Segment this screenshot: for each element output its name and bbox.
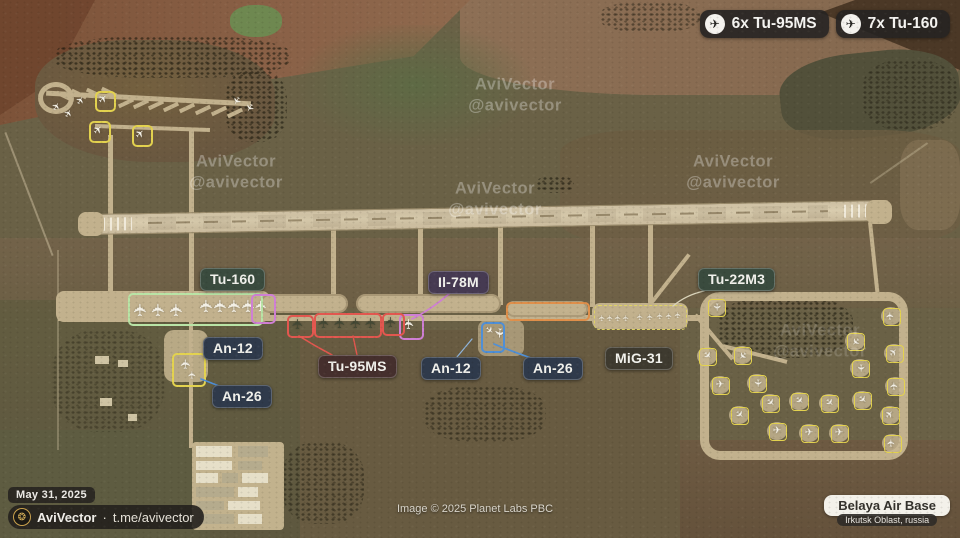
annotation-label-il78m: Il-78M bbox=[428, 271, 489, 294]
revetment-pad bbox=[852, 391, 872, 409]
footer-left: May 31, 2025 ❂ AviVector · t.me/avivecto… bbox=[8, 487, 204, 529]
watermark-line2: @avivector bbox=[151, 172, 321, 193]
revetment-pad bbox=[850, 359, 870, 377]
annotation-label-an12-left: An-12 bbox=[203, 337, 263, 360]
revetment-pad bbox=[706, 298, 726, 316]
apron-strip bbox=[356, 294, 501, 313]
building bbox=[196, 446, 232, 457]
avivector-logo-icon: ❂ bbox=[13, 508, 31, 526]
revetment-pad bbox=[884, 344, 904, 362]
runway-turnaround bbox=[78, 212, 104, 236]
revetment-pad bbox=[882, 434, 902, 452]
author-credit: ❂ AviVector · t.me/avivector bbox=[8, 505, 204, 529]
center-pad bbox=[478, 320, 524, 356]
building bbox=[196, 461, 232, 470]
perimeter-road bbox=[57, 250, 59, 450]
revetment-pad bbox=[710, 376, 730, 394]
annotation-label-mig31: MiG-31 bbox=[605, 347, 673, 370]
annotation-label-tu95ms: Tu-95MS bbox=[318, 355, 397, 378]
base-name-block: Belaya Air Base Irkutsk Oblast, russia bbox=[824, 495, 950, 526]
annotation-label-an12-center: An-12 bbox=[421, 357, 481, 380]
building bbox=[238, 514, 262, 524]
base-name: Belaya Air Base bbox=[824, 495, 950, 516]
annotation-label-tu22m3: Tu-22M3 bbox=[698, 268, 775, 291]
revetment-pad bbox=[732, 346, 752, 364]
badge-label: 7x Tu-160 bbox=[868, 15, 938, 33]
building bbox=[196, 473, 218, 483]
taxiway-connector bbox=[590, 223, 595, 307]
credit-separator: · bbox=[103, 510, 107, 525]
watermark-line1: AviVector bbox=[410, 178, 580, 199]
annotation-label-an26-center: An-26 bbox=[523, 357, 583, 380]
revetment-pad bbox=[729, 406, 749, 424]
taxiway-connector bbox=[498, 225, 503, 305]
building bbox=[238, 487, 258, 497]
plane-icon: ✈ bbox=[705, 14, 725, 34]
badge-tu95ms-count: ✈ 6x Tu-95MS bbox=[700, 10, 829, 38]
building bbox=[128, 414, 137, 421]
revetment-pad bbox=[799, 424, 819, 442]
annotation-label-an26-left: An-26 bbox=[212, 385, 272, 408]
revetment-pad bbox=[881, 307, 901, 325]
revetment-pad bbox=[697, 347, 717, 365]
plane-icon: ✈ bbox=[841, 14, 861, 34]
revetment-pad bbox=[747, 374, 767, 392]
revetment-pad bbox=[829, 424, 849, 442]
revetment-pad bbox=[760, 394, 780, 412]
author-brand: AviVector bbox=[37, 510, 97, 525]
apron-strip bbox=[260, 294, 348, 313]
building bbox=[242, 473, 268, 483]
revetment-pad bbox=[819, 394, 839, 412]
base-location: Irkutsk Oblast, russia bbox=[837, 514, 937, 526]
building bbox=[95, 356, 109, 364]
building bbox=[118, 360, 128, 367]
terrain-patch bbox=[230, 5, 282, 37]
mig-apron bbox=[592, 303, 688, 329]
revetment-pad bbox=[885, 377, 905, 395]
badge-tu160-count: ✈ 7x Tu-160 bbox=[836, 10, 950, 38]
revetment-pad bbox=[789, 392, 809, 410]
an-stub-pad bbox=[164, 330, 208, 382]
taxiway-connector bbox=[331, 228, 336, 300]
badge-label: 6x Tu-95MS bbox=[732, 15, 817, 33]
runway-turnaround bbox=[866, 200, 892, 224]
building bbox=[222, 473, 238, 483]
building bbox=[100, 398, 112, 406]
apron-strip bbox=[506, 301, 588, 317]
revetment-pad bbox=[767, 422, 787, 440]
terrain-patch bbox=[300, 25, 530, 145]
building bbox=[228, 501, 260, 510]
building bbox=[238, 446, 268, 457]
revetment-pad bbox=[880, 406, 900, 424]
annotation-label-tu160: Tu-160 bbox=[200, 268, 265, 291]
date-badge: May 31, 2025 bbox=[8, 487, 95, 503]
building bbox=[238, 461, 262, 470]
aircraft-count-badges: ✈ 6x Tu-95MS ✈ 7x Tu-160 bbox=[700, 10, 950, 38]
satellite-image: ✈✈✈✈✈✈✈✈✈✈✈✈✈✈✈✈✈✈✈✈✈✈✈✈✈✈✈✈✈✈✈✈✈✈✈✈✈✈✈✈… bbox=[0, 0, 960, 538]
author-handle: t.me/avivector bbox=[113, 510, 194, 525]
revetment-pad bbox=[845, 332, 865, 350]
image-credit: Image © 2025 Planet Labs PBC bbox=[397, 503, 553, 515]
apron bbox=[56, 291, 270, 322]
taxiway-connector bbox=[418, 226, 423, 302]
taxiway-connector bbox=[648, 222, 653, 307]
